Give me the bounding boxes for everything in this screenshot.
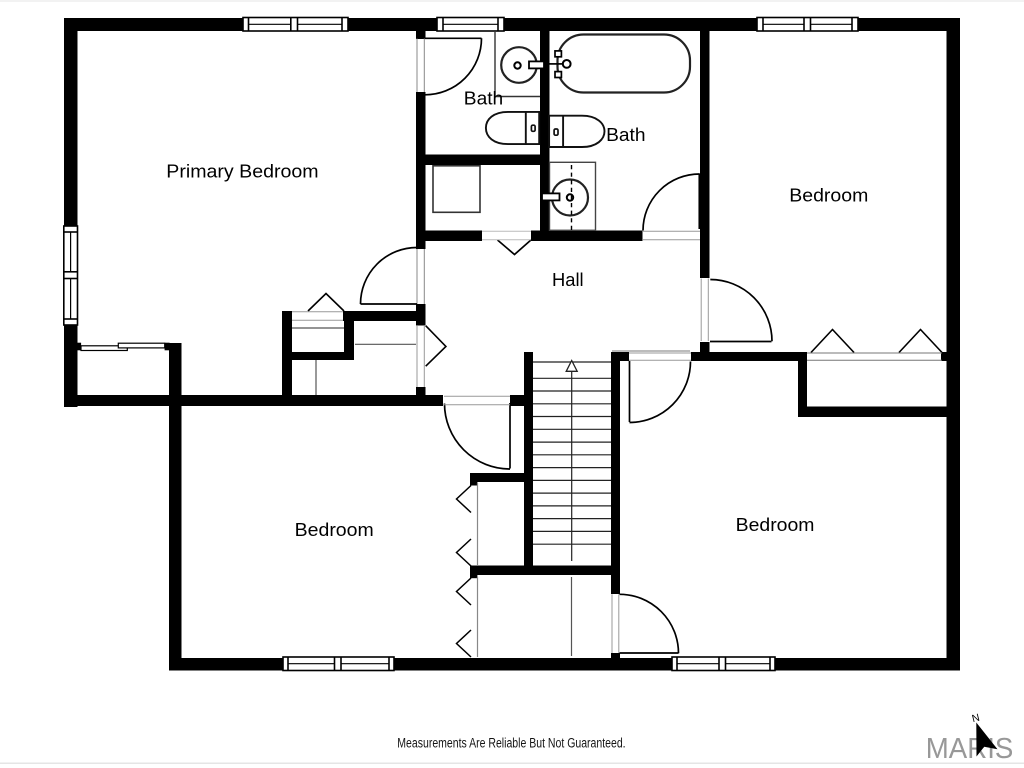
svg-text:Bath: Bath [606,124,645,145]
svg-text:Hall: Hall [552,269,584,290]
svg-text:Bedroom: Bedroom [789,185,868,206]
svg-text:Measurements Are Reliable But: Measurements Are Reliable But Not Guaran… [397,736,625,751]
svg-text:MARIS: MARIS [926,733,1014,765]
svg-text:Bedroom: Bedroom [736,514,815,535]
svg-text:Primary Bedroom: Primary Bedroom [166,160,318,181]
svg-text:Bath: Bath [464,87,503,108]
svg-text:Bedroom: Bedroom [295,519,374,540]
